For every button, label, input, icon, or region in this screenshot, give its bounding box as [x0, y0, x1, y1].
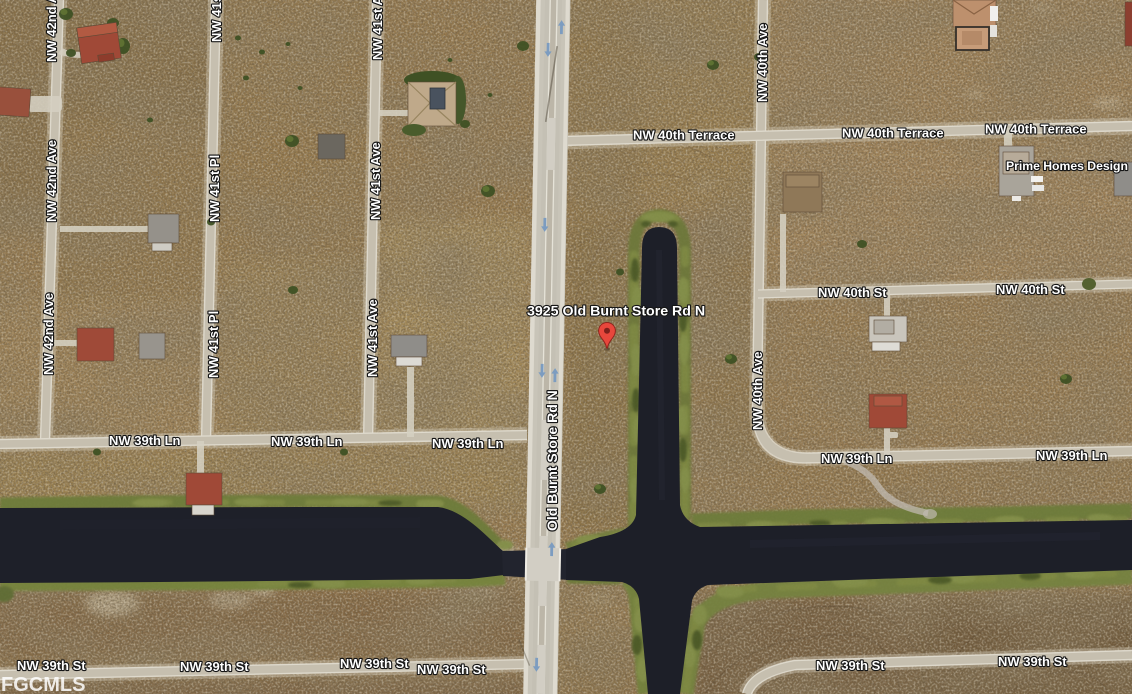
svg-text:NW 42nd Av: NW 42nd Av	[44, 0, 59, 62]
svg-text:NW 41st A: NW 41st A	[370, 0, 385, 60]
svg-text:NW 39th Ln: NW 39th Ln	[821, 451, 893, 466]
svg-text:NW 40th Ave: NW 40th Ave	[750, 352, 765, 431]
svg-text:Prime Homes Design: Prime Homes Design	[1006, 159, 1128, 173]
svg-text:NW 39th Ln: NW 39th Ln	[1036, 448, 1108, 463]
svg-text:FGCMLS: FGCMLS	[1, 674, 85, 694]
svg-text:NW 41st Ave: NW 41st Ave	[365, 299, 380, 377]
svg-text:NW 42nd Ave: NW 42nd Ave	[41, 293, 56, 375]
svg-text:NW 40th Terrace: NW 40th Terrace	[842, 126, 944, 141]
svg-text:NW 41st: NW 41st	[209, 0, 224, 42]
svg-text:NW 39th St: NW 39th St	[340, 656, 409, 671]
svg-text:NW 41st Pl: NW 41st Pl	[206, 311, 221, 378]
svg-text:NW 40th Ave: NW 40th Ave	[755, 24, 770, 103]
svg-text:NW 39th Ln: NW 39th Ln	[271, 434, 343, 449]
svg-text:NW 39th St: NW 39th St	[417, 662, 486, 677]
svg-text:NW 40th St: NW 40th St	[818, 285, 887, 300]
svg-text:NW 40th St: NW 40th St	[996, 282, 1065, 297]
svg-text:NW 39th St: NW 39th St	[180, 659, 249, 674]
svg-text:NW 39th St: NW 39th St	[998, 654, 1067, 669]
svg-text:NW 39th St: NW 39th St	[816, 658, 885, 673]
svg-text:NW 40th Terrace: NW 40th Terrace	[633, 128, 735, 143]
svg-text:NW 39th St: NW 39th St	[17, 658, 86, 673]
svg-text:NW 41st Ave: NW 41st Ave	[368, 142, 383, 220]
svg-text:NW 40th Terrace: NW 40th Terrace	[985, 122, 1087, 137]
svg-text:NW 39th Ln: NW 39th Ln	[109, 433, 181, 448]
svg-text:NW 42nd Ave: NW 42nd Ave	[44, 140, 59, 222]
svg-text:Old Burnt Store Rd N: Old Burnt Store Rd N	[544, 390, 560, 531]
svg-text:3925 Old Burnt Store Rd N: 3925 Old Burnt Store Rd N	[527, 304, 705, 320]
svg-text:NW 41st Pl: NW 41st Pl	[207, 155, 222, 222]
svg-text:NW 39th Ln: NW 39th Ln	[432, 436, 504, 451]
